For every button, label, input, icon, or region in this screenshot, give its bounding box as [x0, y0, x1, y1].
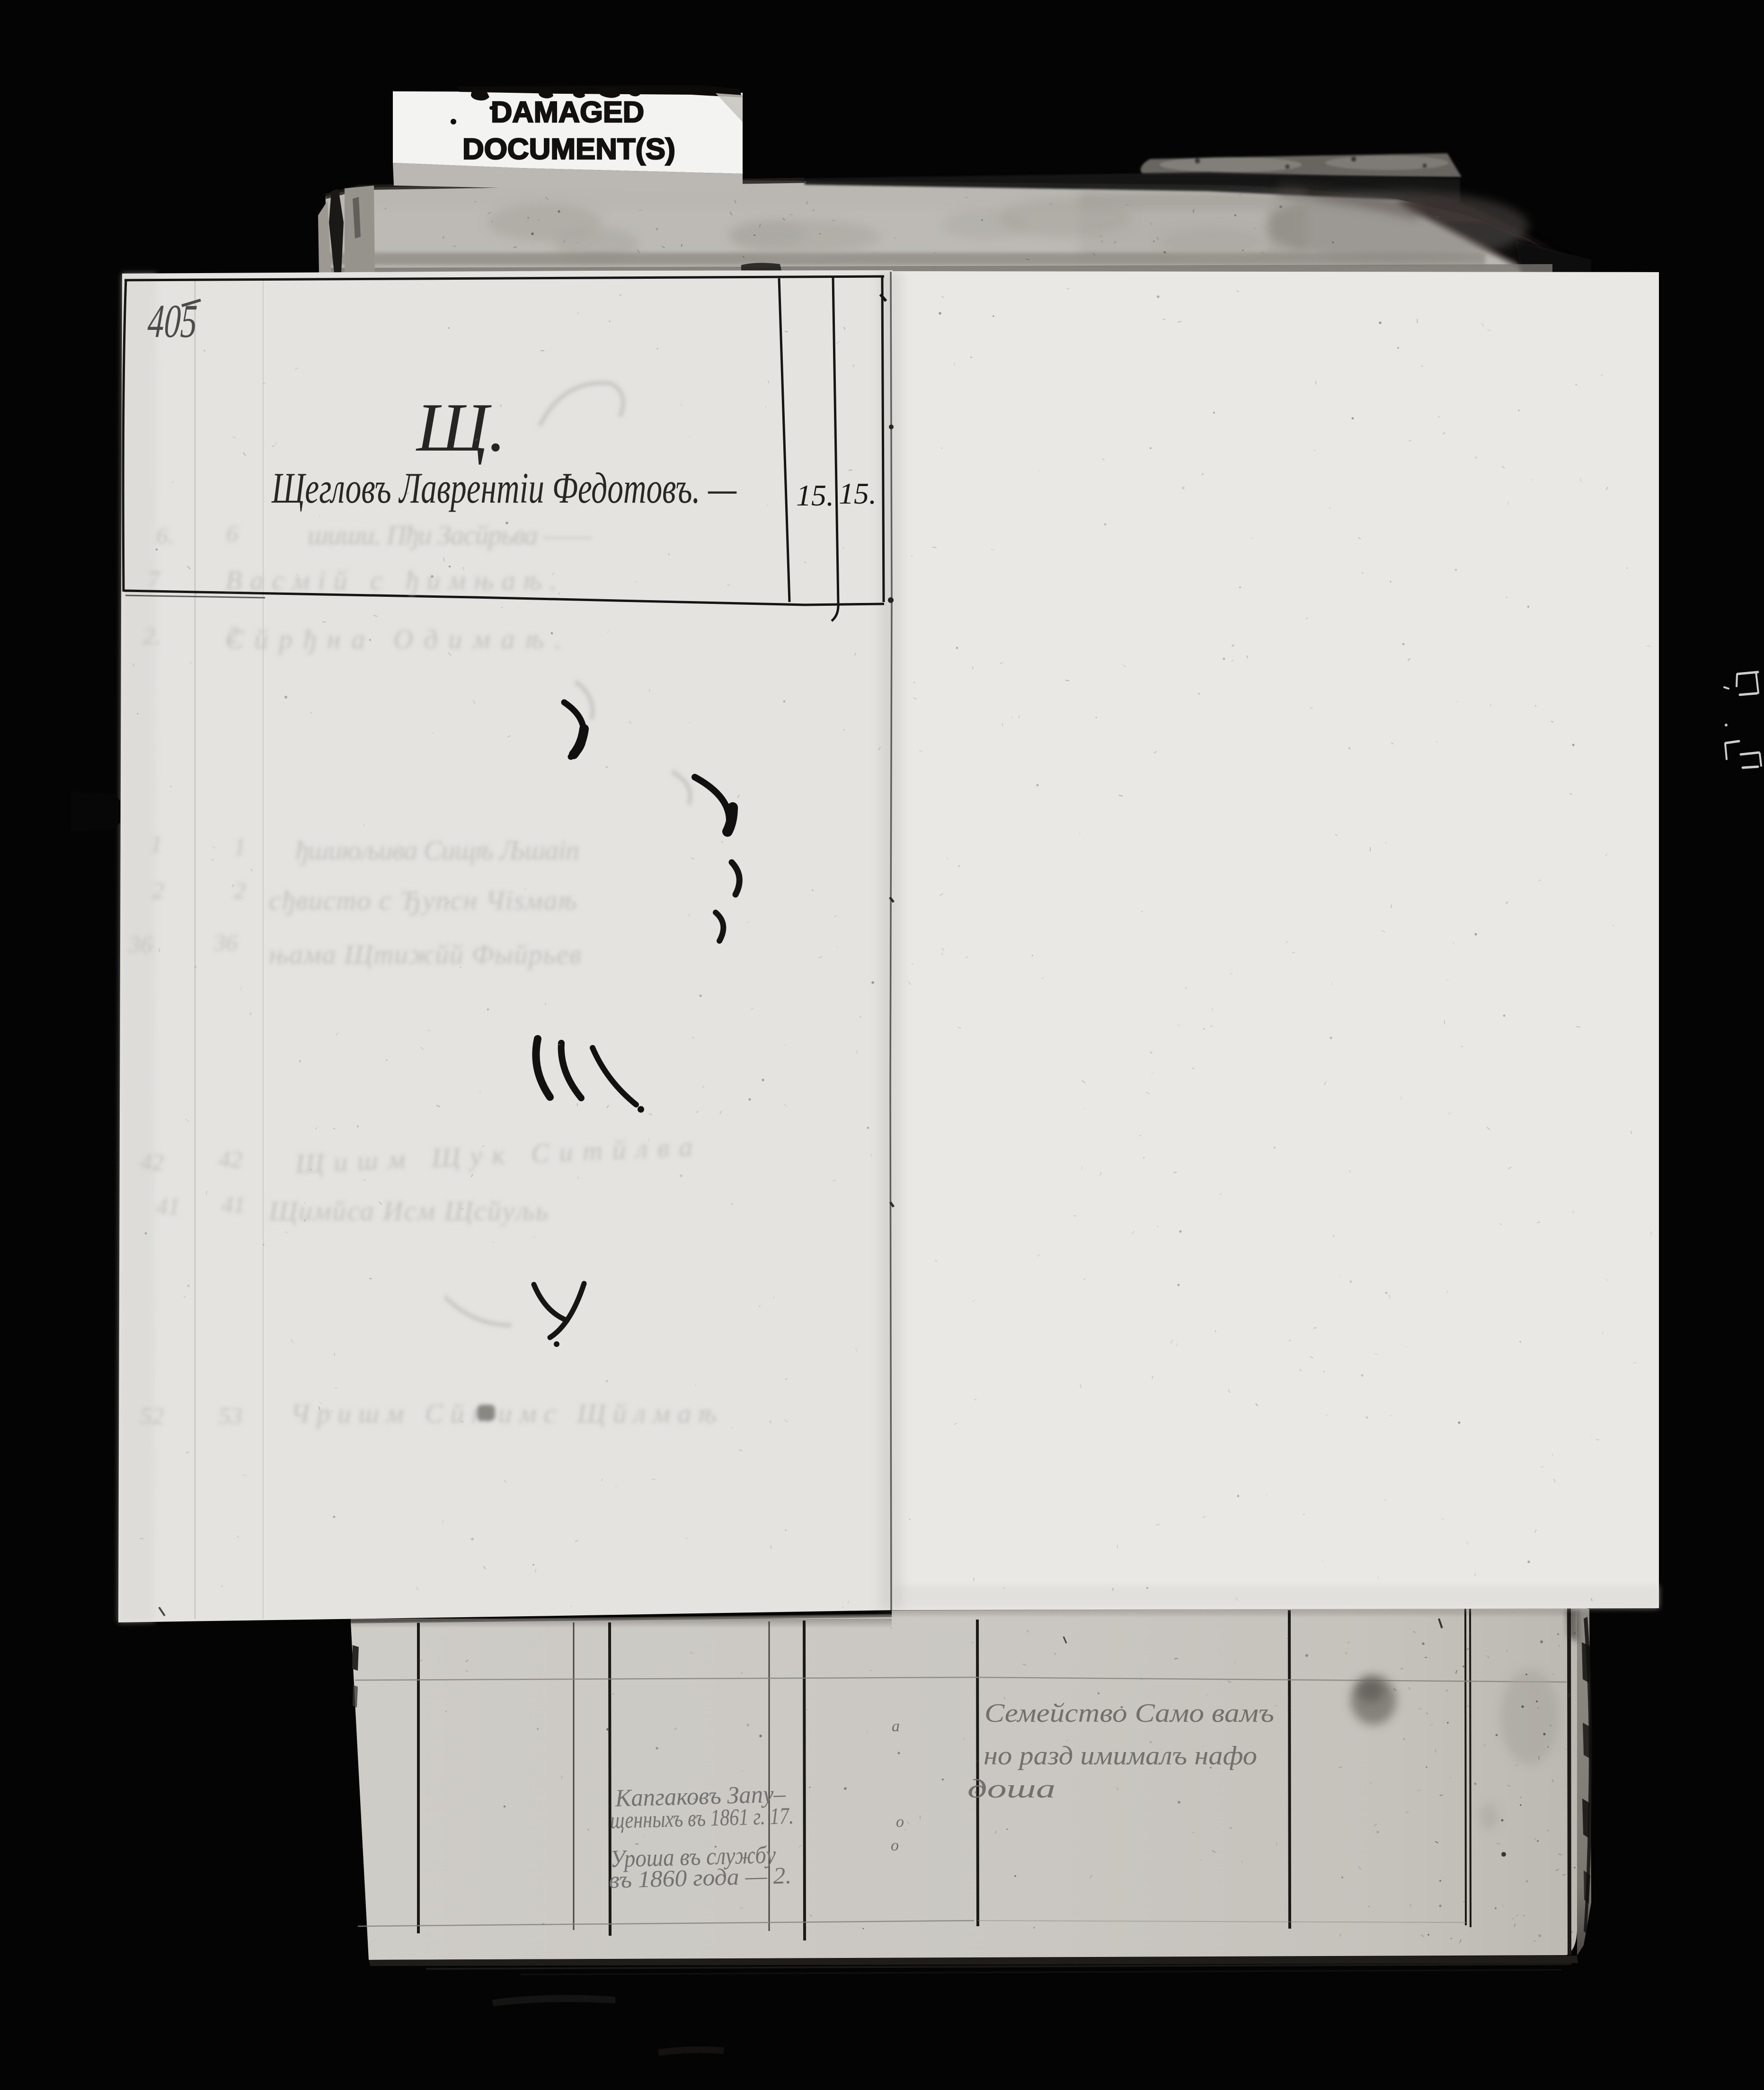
svg-text:Васмій с ђимњаѣ.: Васмій с ђимњаѣ. — [225, 565, 557, 596]
svg-text:2: 2 — [227, 621, 239, 648]
svg-text:о: о — [896, 1813, 904, 1831]
svg-text:а: а — [892, 1718, 900, 1735]
svg-text:1: 1 — [151, 831, 162, 857]
svg-text:њама Щтижйй Фыйрьев: њама Щтижйй Фыйрьев — [269, 939, 581, 970]
svg-text:Щегловъ Лаврентіи Федотовъ. —: Щегловъ Лаврентіи Федотовъ. — — [271, 464, 737, 512]
svg-text:15.: 15. — [839, 477, 877, 510]
svg-text:въ 1860 года — 2.: въ 1860 года — 2. — [609, 1862, 792, 1893]
svg-text:но разд имималъ нафо: но разд имималъ нафо — [984, 1741, 1257, 1771]
svg-text:щенныхъ въ 1861 г. 17.: щенныхъ въ 1861 г. 17. — [610, 1802, 794, 1833]
svg-text:2: 2 — [234, 877, 246, 903]
svg-text:6: 6 — [226, 520, 238, 547]
svg-text:41: 41 — [222, 1191, 245, 1218]
svg-text:DAMAGED: DAMAGED — [491, 96, 644, 129]
svg-text:41: 41 — [156, 1193, 180, 1220]
svg-text:52: 52 — [140, 1402, 164, 1429]
svg-text:36: 36 — [213, 929, 238, 956]
svg-text:42: 42 — [140, 1149, 164, 1175]
svg-text:Семейство Само вамъ: Семейство Само вамъ — [984, 1699, 1274, 1728]
svg-text:Щимйса Исм Щсйуљь: Щимйса Исм Щсйуљь — [268, 1196, 548, 1226]
svg-text:36: 36 — [128, 931, 152, 957]
svg-text:6.: 6. — [156, 522, 174, 549]
svg-text:доша: доша — [967, 1774, 1055, 1804]
svg-text:2.: 2. — [143, 622, 161, 649]
svg-text:шиши. Пђи Засйрьва ——: шиши. Пђи Засйрьва —— — [308, 520, 592, 550]
svg-text:15.: 15. — [796, 478, 834, 512]
svg-text:ђшиюљива Сищѣ Љшаіп: ђшиюљива Сищѣ Љшаіп — [295, 835, 579, 866]
svg-text:7: 7 — [148, 566, 160, 592]
svg-text:2: 2 — [152, 877, 164, 903]
svg-text:53: 53 — [219, 1402, 242, 1429]
svg-text:сђвисто с Ђупсн Чіѕмаѣ: сђвисто с Ђупсн Чіѕмаѣ — [269, 885, 576, 916]
svg-text:о: о — [891, 1837, 899, 1854]
svg-text:1: 1 — [234, 833, 246, 860]
svg-text:DOCUMENT(S): DOCUMENT(S) — [462, 133, 675, 166]
svg-text:42: 42 — [219, 1146, 242, 1172]
svg-text:Щ.: Щ. — [416, 389, 506, 466]
